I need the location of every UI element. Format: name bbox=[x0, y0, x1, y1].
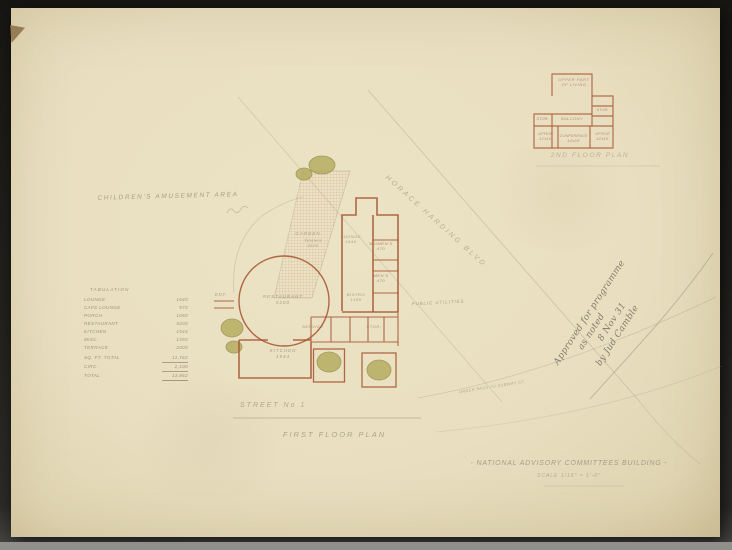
table-row: KITCHEN1544 bbox=[84, 328, 188, 336]
room-label-upper-part: UPPER PART OF LIVING bbox=[551, 77, 597, 87]
table-edge bbox=[0, 542, 732, 550]
room-label-tennis: TENNIS 4500 bbox=[295, 238, 331, 248]
table-row: TERRACE2000 bbox=[84, 344, 188, 352]
tabulation-header: TABULATION bbox=[84, 287, 188, 292]
first-floor-caption: FIRST FLOOR PLAN bbox=[262, 430, 407, 440]
room-label-bistro: BISTRO 1400 bbox=[340, 292, 372, 302]
room-label-kitchen: KITCHEN 1544 bbox=[255, 348, 311, 360]
room-label-mens-toilet: MEN'S 470 bbox=[366, 273, 396, 283]
room-label-storage: STOR. bbox=[362, 324, 386, 329]
room-label-balcony: BALCONY bbox=[554, 116, 590, 121]
pencil-scribble bbox=[227, 206, 248, 213]
room-label-service: SERVICE bbox=[296, 324, 330, 329]
room-label-conference: CONFERENCE 14'x24' bbox=[557, 133, 590, 143]
project-title: - NATIONAL ADVISORY COMMITTEES BUILDING … bbox=[448, 459, 690, 468]
room-label-office-left: OFFICE 12'x15' bbox=[534, 131, 557, 141]
room-label-office-right: OFFICE 12'x15' bbox=[591, 131, 614, 141]
room-label-lounge: LOUNGE 1640 bbox=[334, 234, 368, 244]
room-label-stor-left: STOR. bbox=[534, 116, 551, 121]
room-label-garden: GARDEN bbox=[283, 231, 333, 237]
table-row: CAFE LOUNGE970 bbox=[84, 304, 188, 312]
table-row: RESTAURANT5200 bbox=[84, 320, 188, 328]
area-tabulation-table: TABULATION LOUNGE1640 CAFE LOUNGE970 POR… bbox=[84, 287, 188, 381]
street-label: STREET No 1 bbox=[240, 401, 350, 410]
table-row: LOUNGE1640 bbox=[84, 296, 188, 304]
room-label-stor-right: STOR. bbox=[593, 107, 612, 112]
table-row: MISC.1350 bbox=[84, 336, 188, 344]
table-row-circulation: CIRC.2,100 bbox=[84, 363, 188, 372]
scale-note: SCALE 1/16" = 1'-0" bbox=[448, 473, 690, 480]
table-row: PORCH1050 bbox=[84, 312, 188, 320]
second-floor-caption: 2ND FLOOR PLAN bbox=[534, 152, 646, 160]
table-row-subtotal: SQ. FT. TOTAL11,762 bbox=[84, 354, 188, 363]
desk-background: CHILDREN'S AMUSEMENT AREA HORACE HARDING… bbox=[0, 0, 732, 550]
room-label-restaurant: RESTAURANT 5200 bbox=[252, 294, 314, 306]
table-row-total: TOTAL13,862 bbox=[84, 372, 188, 381]
room-label-womens-toilet: WOMEN'S 470 bbox=[366, 241, 396, 251]
entrance-label: ENT. bbox=[211, 292, 231, 298]
